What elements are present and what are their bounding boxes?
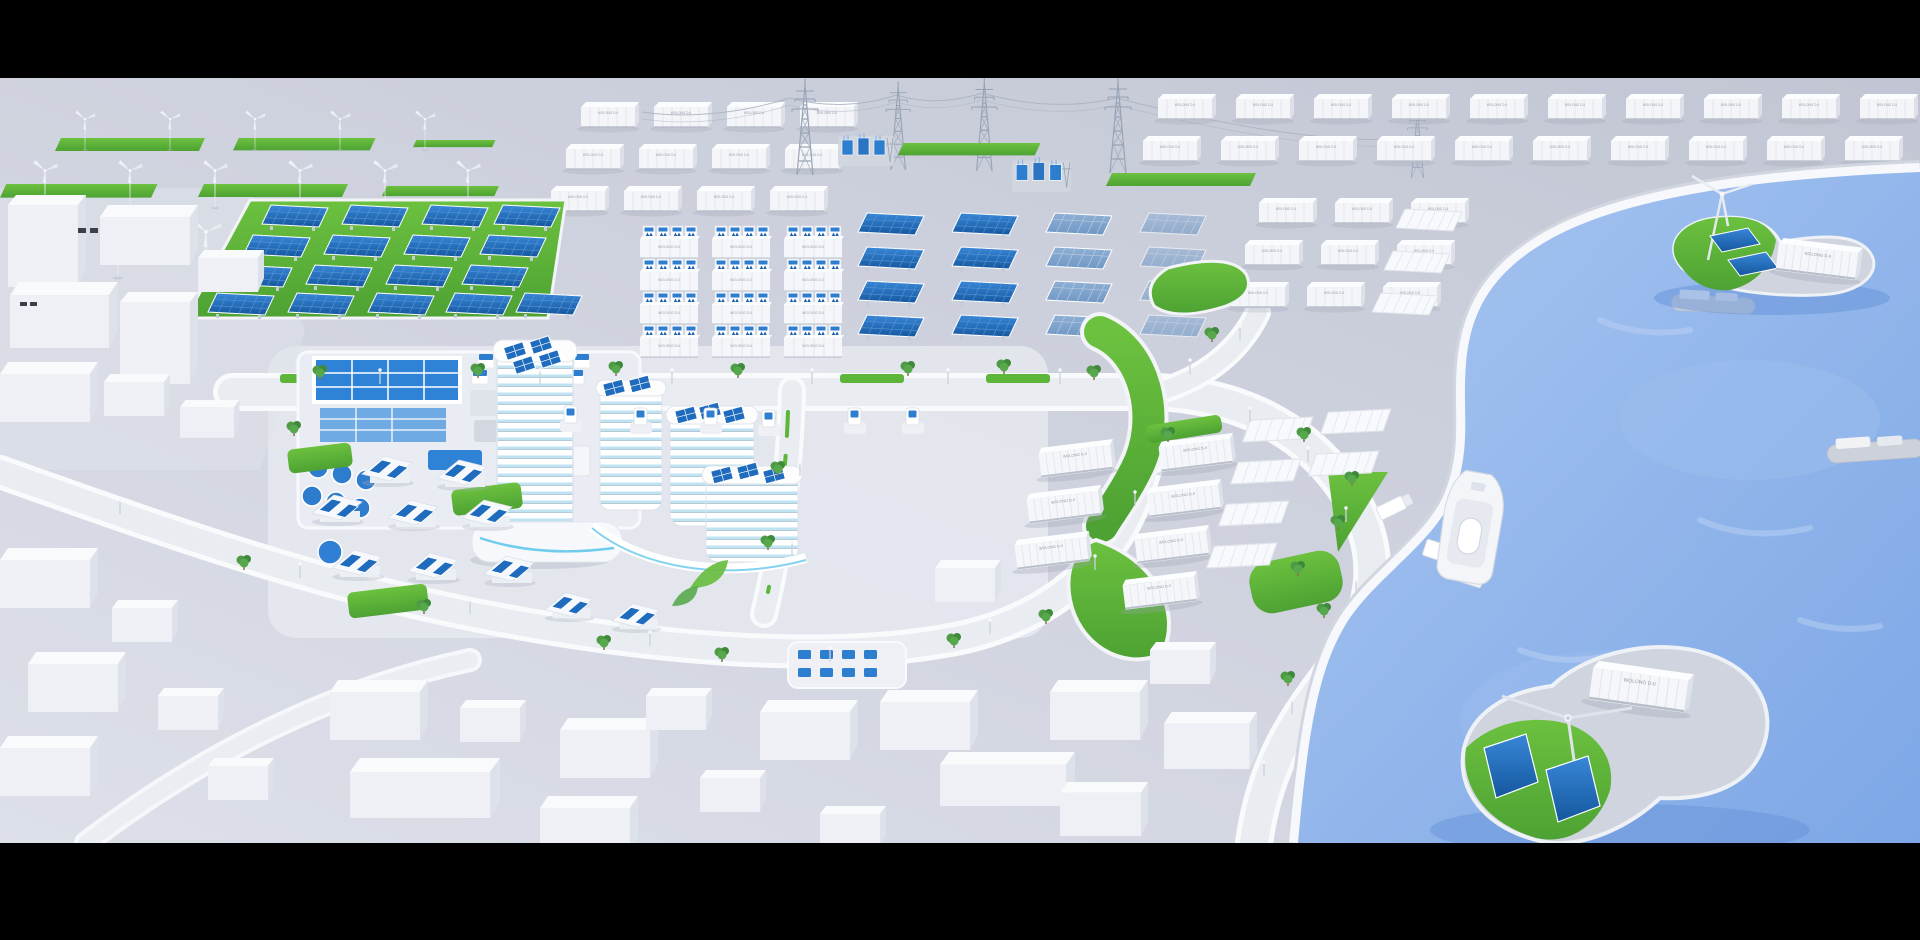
- parking-lot: [788, 642, 906, 688]
- white-rack: [1372, 293, 1438, 315]
- city-block: [646, 688, 712, 730]
- window: [30, 302, 37, 306]
- substation: [838, 133, 894, 166]
- city-block: [330, 680, 428, 740]
- storage-container: [562, 144, 624, 175]
- city-block: [940, 752, 1075, 806]
- storage-container: [620, 186, 682, 217]
- city-block: [760, 700, 858, 760]
- storage-container: [1544, 94, 1606, 125]
- midrise-building: [600, 388, 662, 510]
- window: [90, 228, 98, 233]
- substation: [1012, 157, 1071, 192]
- grass-strip: [233, 138, 376, 150]
- rendered-scene-stage: WOLONG D-II WOLONG D-II WOLONG D-II: [0, 0, 1920, 940]
- white-rack: [1396, 209, 1462, 231]
- storage-container: [693, 186, 755, 217]
- city-block: [100, 205, 198, 265]
- city-block: [1060, 782, 1148, 836]
- city-block: [560, 718, 658, 778]
- storage-container: [1373, 136, 1435, 167]
- gas-sphere-tank: [318, 540, 342, 564]
- storage-container: [766, 186, 828, 217]
- city-block: [198, 250, 264, 292]
- city-block: [460, 700, 526, 742]
- storage-container: [1466, 94, 1528, 125]
- city-render: WOLONG D-II WOLONG D-II WOLONG D-II: [0, 0, 1920, 940]
- storage-container: [796, 102, 858, 133]
- city-block: [180, 400, 239, 438]
- storage-container: [1856, 94, 1918, 125]
- city-block: [120, 292, 198, 384]
- city-block: [350, 758, 500, 818]
- city-block: [880, 690, 978, 750]
- storage-container: [1451, 136, 1513, 167]
- storage-container: [1310, 94, 1372, 125]
- city-block: [8, 195, 86, 287]
- storage-container: [1217, 136, 1279, 167]
- city-block: [1164, 712, 1257, 769]
- storage-container: [1317, 240, 1379, 271]
- window: [78, 228, 86, 233]
- storage-container: [708, 144, 770, 175]
- grass-strip: [198, 184, 348, 197]
- storage-container: [1700, 94, 1762, 125]
- storage-container: [1607, 136, 1669, 167]
- solar-array: [1140, 213, 1206, 235]
- midrise-building: [706, 474, 798, 562]
- city-block: [104, 374, 170, 416]
- grass-strip: [382, 186, 499, 196]
- scene: [0, 77, 1920, 856]
- storage-container: [1763, 136, 1825, 167]
- storage-container: [635, 144, 697, 175]
- storage-container: [1295, 136, 1357, 167]
- storage-container: [1241, 240, 1303, 271]
- solar-array: [1046, 213, 1112, 235]
- city-block: [1050, 680, 1148, 740]
- window: [20, 302, 27, 306]
- city-block: [0, 548, 98, 608]
- city-block: [0, 736, 98, 796]
- city-block: [112, 600, 178, 642]
- solar-array: [1046, 247, 1112, 269]
- city-block: [208, 758, 274, 800]
- storage-container: [1154, 94, 1216, 125]
- storage-container: [1529, 136, 1591, 167]
- storage-container: [1685, 136, 1747, 167]
- city-block: [935, 560, 1001, 602]
- letterbox-bottom: [0, 843, 1920, 940]
- grass-strip: [898, 143, 1041, 155]
- storage-container: [1331, 198, 1393, 229]
- storage-container: [650, 102, 712, 133]
- storage-container: [1303, 282, 1365, 313]
- solar-array: [1046, 281, 1112, 303]
- storage-container: [1778, 94, 1840, 125]
- storage-container: [577, 102, 639, 133]
- storage-container: [1232, 94, 1294, 125]
- city-block: [28, 652, 126, 712]
- letterbox-top: [0, 0, 1920, 78]
- city-block: [820, 806, 886, 848]
- storage-container: [1388, 94, 1450, 125]
- grass-strip: [413, 140, 496, 147]
- factory-blue-roof: [316, 360, 458, 400]
- city-block: [1150, 642, 1216, 684]
- white-rack: [1384, 251, 1450, 273]
- grass-strip: [1106, 173, 1256, 186]
- storage-container: [723, 102, 785, 133]
- battery-storage-stacks: [640, 226, 844, 358]
- factory-roof-2: [320, 408, 446, 442]
- city-block: [158, 688, 224, 730]
- city-block: [10, 282, 118, 348]
- city-block: [0, 362, 98, 422]
- city-block: [700, 770, 766, 812]
- grass-strip: [55, 138, 205, 151]
- solar-array: [1140, 315, 1206, 337]
- storage-container: [1255, 198, 1317, 229]
- storage-container: [1139, 136, 1201, 167]
- storage-container: [1622, 94, 1684, 125]
